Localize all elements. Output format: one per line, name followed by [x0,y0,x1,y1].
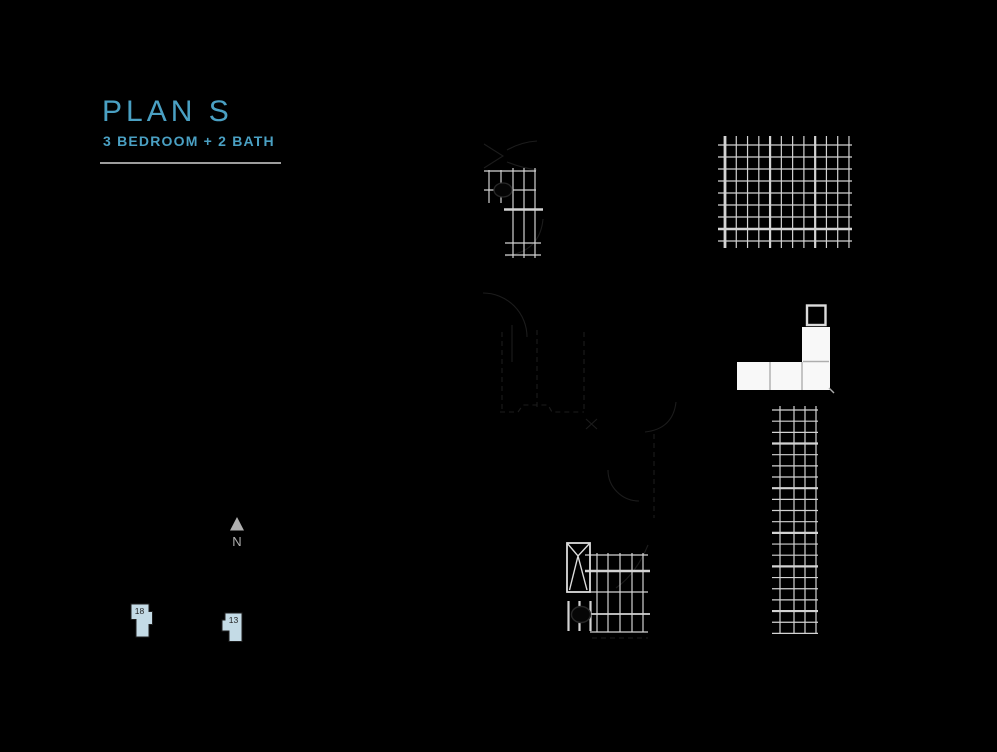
north-arrow-icon [230,517,244,531]
master-bath-tile-grid [718,136,852,248]
faint-plan-line [608,470,639,501]
keyplan-unit-18: 18 [131,604,153,637]
kitchen-counter [737,306,834,394]
second-bath-tile-grid [585,553,650,632]
appliance-square [807,306,826,326]
toilet-shape [572,607,591,623]
hallway-tile-strip [772,406,818,634]
counter-surface [737,327,830,390]
faint-plan-line [483,293,527,337]
shower-unit [567,543,590,592]
north-compass: N [230,517,244,549]
floor-plan-canvas: N 18 13 [0,0,997,752]
faint-plan-line [500,405,584,412]
keyplan-unit-number: 13 [229,615,239,625]
faint-plan-line [645,402,676,432]
keyplan-unit-number: 18 [135,606,145,616]
bathroom-tile-grid-top [484,168,543,258]
keyplan-unit-13: 13 [222,613,242,642]
faint-plan-line [484,144,503,168]
north-label: N [232,534,241,549]
counter-corner-tick [829,388,834,393]
faint-plan-line [586,419,597,429]
faint-plan-line [507,141,537,150]
sink-shape [494,183,512,197]
shower-x-pattern [567,543,590,590]
faint-plan-line [507,162,537,170]
floorplan-page: PLAN S 3 BEDROOM + 2 BATH [0,0,997,752]
